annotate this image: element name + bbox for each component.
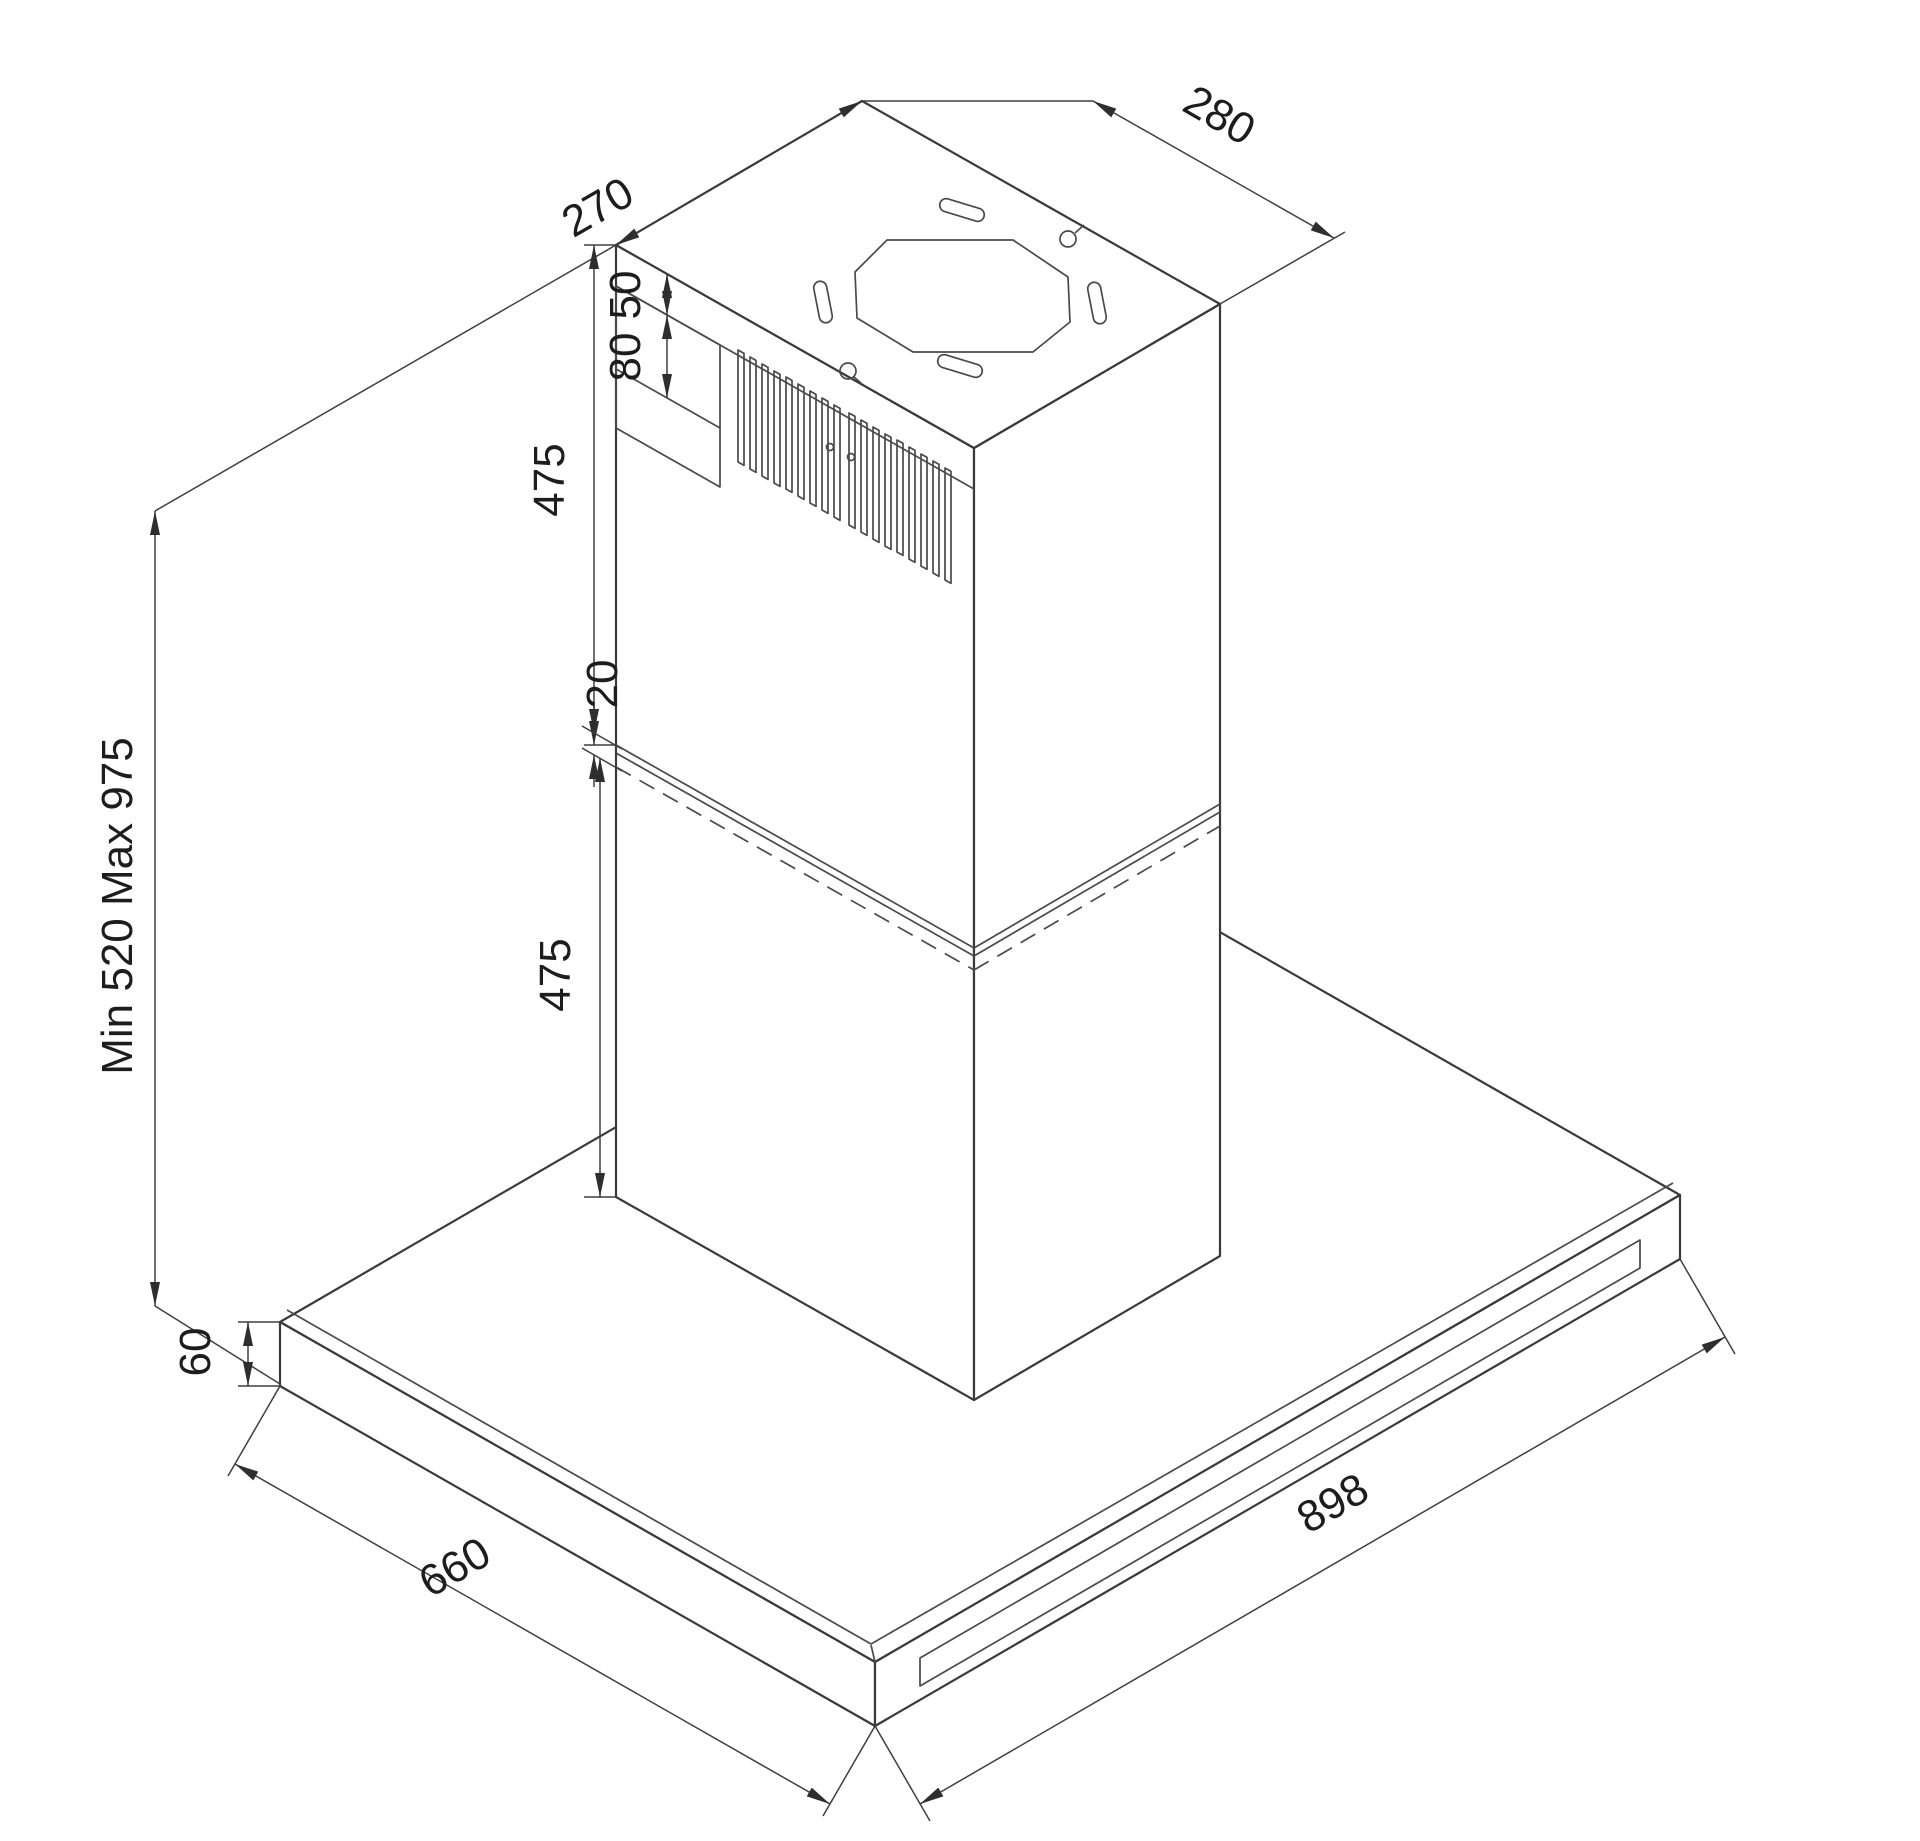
chimney — [616, 101, 1220, 1400]
dim-475-upper-label: 475 — [525, 443, 574, 516]
chimney-right-face — [974, 304, 1220, 1400]
dim-min-max-label: Min 520 Max 975 — [93, 737, 142, 1075]
dim-50-label: 50 — [601, 271, 650, 320]
drawing-page: 270 280 50 80 475 20 — [0, 0, 1920, 1841]
dim-60-label: 60 — [171, 1328, 220, 1377]
range-hood-dimension-drawing: 270 280 50 80 475 20 — [0, 0, 1920, 1841]
dim-80-label: 80 — [601, 333, 650, 382]
dim-475-lower-label: 475 — [531, 938, 580, 1011]
dim-20-label: 20 — [578, 660, 627, 709]
